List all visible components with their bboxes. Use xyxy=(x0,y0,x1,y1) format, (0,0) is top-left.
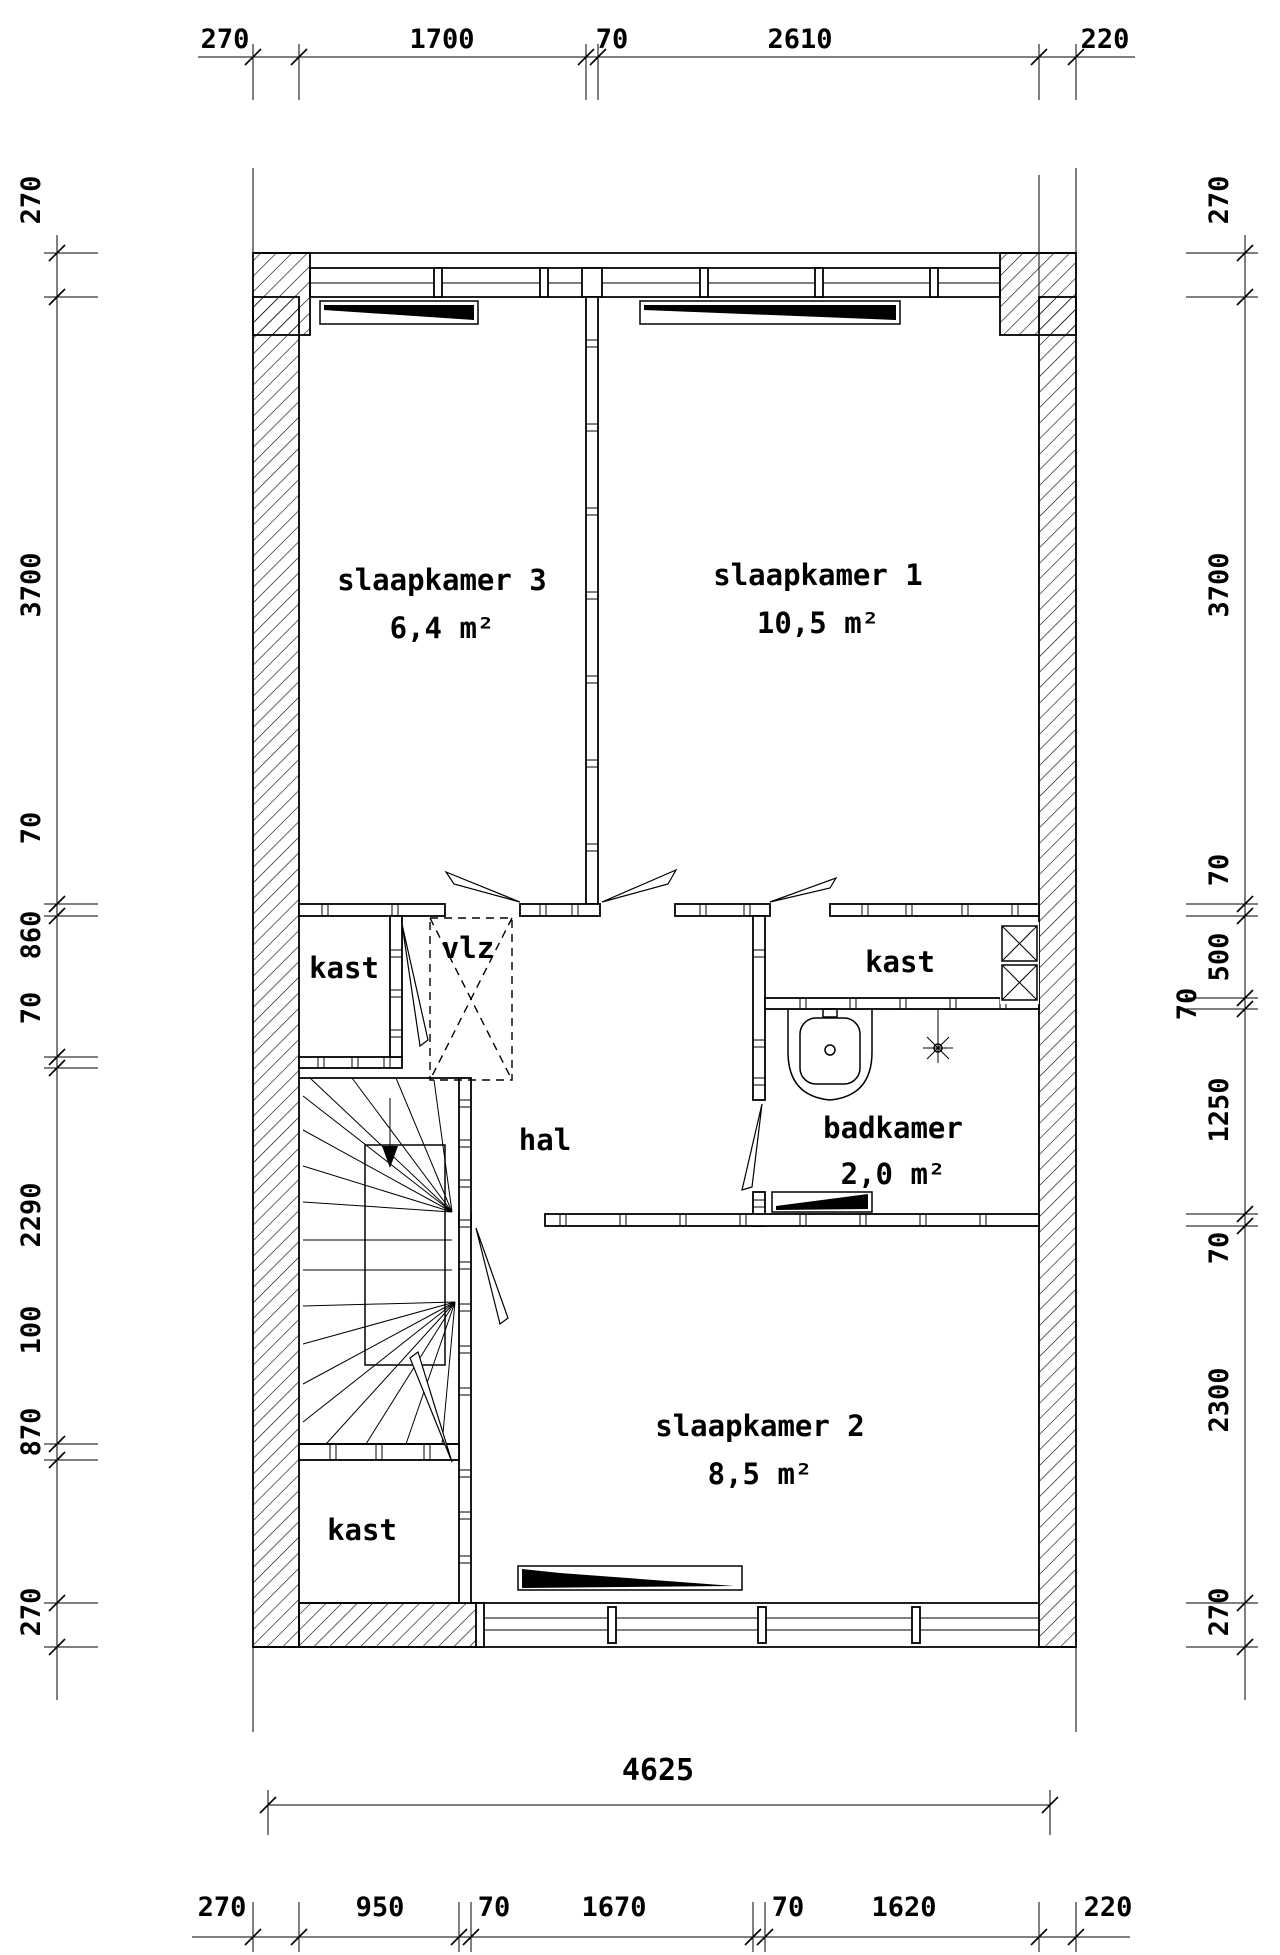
dim-bottom-0: 270 xyxy=(198,1892,247,1923)
room-area-slaapkamer3: 6,4 m² xyxy=(390,611,495,645)
duct-shafts xyxy=(1000,922,1039,1004)
dim-top-1: 1700 xyxy=(409,24,474,55)
top-left-pier xyxy=(253,253,310,335)
wall-under-bedrooms xyxy=(299,904,445,916)
dim-right-2: 70 xyxy=(1204,854,1235,887)
dim-left-8: 270 xyxy=(16,1588,47,1637)
window-mullion xyxy=(912,1607,920,1643)
door-leaf-kast-hal xyxy=(402,924,428,1046)
right-exterior-wall xyxy=(1039,297,1076,1647)
radiator-icon xyxy=(640,301,900,324)
dim-left-1: 3700 xyxy=(16,552,47,617)
door-leaf-slaapkamer1 xyxy=(602,870,676,902)
wall-kast-bottom xyxy=(299,1057,402,1068)
dim-top-3: 2610 xyxy=(767,24,832,55)
stairs xyxy=(299,1078,459,1444)
dim-right-7: 2300 xyxy=(1204,1367,1235,1432)
dim-bottom-5: 1620 xyxy=(871,1892,936,1923)
ceiling-light-icon xyxy=(923,1009,953,1063)
room-label-badkamer: badkamer xyxy=(823,1111,963,1145)
wall-stair-kast xyxy=(299,1444,459,1460)
left-exterior-wall xyxy=(253,297,299,1647)
window-mullion xyxy=(758,1607,766,1643)
wall-kast-right xyxy=(390,916,402,1057)
dim-bottom-6: 220 xyxy=(1084,1892,1133,1923)
dim-right-6: 70 xyxy=(1204,1232,1235,1265)
dimension-left xyxy=(44,235,98,1700)
dim-left-0: 270 xyxy=(16,176,47,225)
room-label-slaapkamer2: slaapkamer 2 xyxy=(655,1409,865,1443)
dim-top-0: 270 xyxy=(201,24,250,55)
floor-plan-svg: 270 1700 70 2610 220 270 3700 70 860 70 … xyxy=(0,0,1280,1955)
room-area-badkamer: 2,0 m² xyxy=(841,1157,946,1191)
wall-sk2-top xyxy=(545,1214,1039,1226)
dim-right-3: 500 xyxy=(1204,933,1235,982)
dim-top-2: 70 xyxy=(596,24,629,55)
room-area-slaapkamer2: 8,5 m² xyxy=(708,1457,813,1491)
dim-bottom-4: 70 xyxy=(772,1892,805,1923)
dim-right-4: 70 xyxy=(1172,988,1203,1021)
door-leaf-badkamer xyxy=(742,1104,762,1190)
sink-icon xyxy=(788,1009,872,1100)
dimension-top xyxy=(198,44,1135,100)
stair-treads-middle xyxy=(303,1240,452,1270)
top-window-band xyxy=(253,253,1076,297)
wall-under-bedrooms xyxy=(830,904,1039,916)
window-mullion xyxy=(930,268,938,297)
dim-bottom-1: 950 xyxy=(356,1892,405,1923)
top-right-pier xyxy=(1000,253,1076,335)
dim-right-8: 270 xyxy=(1204,1588,1235,1637)
window-mullion xyxy=(700,268,708,297)
radiator-icon xyxy=(518,1566,742,1590)
wall-under-bedrooms xyxy=(520,904,600,916)
wall-under-bedrooms xyxy=(675,904,770,916)
dim-left-5: 2290 xyxy=(16,1182,47,1247)
door-leaf-slaapkamer2 xyxy=(476,1228,508,1324)
dim-right-5: 1250 xyxy=(1204,1077,1235,1142)
dim-right-1: 3700 xyxy=(1204,552,1235,617)
room-label-slaapkamer1: slaapkamer 1 xyxy=(713,558,923,592)
stair-direction-arrow-icon xyxy=(382,1098,398,1168)
door-leaf-kast-sk1 xyxy=(770,878,836,902)
room-label-hal: hal xyxy=(519,1123,571,1157)
dim-bottom-2: 70 xyxy=(478,1892,511,1923)
stair-newel xyxy=(365,1145,445,1365)
floor-plan-page: 270 1700 70 2610 220 270 3700 70 860 70 … xyxy=(0,0,1280,1955)
dimension-bottom-chain xyxy=(192,1902,1130,1952)
window-mullion xyxy=(434,268,442,297)
bottom-wall-solid-section xyxy=(299,1603,480,1647)
room-label-kast-bottom: kast xyxy=(327,1513,397,1547)
dim-top-4: 220 xyxy=(1081,24,1130,55)
radiator-icon xyxy=(772,1192,872,1212)
window-mullion xyxy=(608,1607,616,1643)
dim-right-0: 270 xyxy=(1204,176,1235,225)
dimension-bottom-total xyxy=(260,1790,1058,1835)
dim-total-width: 4625 xyxy=(622,1753,694,1788)
room-label-slaapkamer3: slaapkamer 3 xyxy=(337,563,547,597)
room-label-vlz: vlz xyxy=(442,931,494,965)
dim-left-7: 870 xyxy=(16,1408,47,1457)
door-leaf-slaapkamer3 xyxy=(446,872,520,902)
wall-stairwell xyxy=(459,1078,471,1603)
dim-left-2: 70 xyxy=(16,812,47,845)
room-label-kast-middle-right: kast xyxy=(865,945,935,979)
dim-left-6: 100 xyxy=(16,1306,47,1355)
wall-badkamer-left xyxy=(753,916,765,1100)
window-mullion xyxy=(540,268,548,297)
dim-left-3: 860 xyxy=(16,911,47,960)
stair-treads-lower xyxy=(303,1302,455,1444)
dim-bottom-3: 1670 xyxy=(581,1892,646,1923)
window-mullion xyxy=(815,268,823,297)
grid-extension-lines xyxy=(253,168,1076,1732)
window-post xyxy=(476,1603,484,1647)
wall-sk3-sk1 xyxy=(586,297,598,904)
room-label-kast-middle-left: kast xyxy=(309,951,379,985)
window-wall-stub xyxy=(582,268,602,297)
room-area-slaapkamer1: 10,5 m² xyxy=(757,606,879,640)
radiator-icon xyxy=(320,301,478,324)
dim-left-4: 70 xyxy=(16,992,47,1025)
